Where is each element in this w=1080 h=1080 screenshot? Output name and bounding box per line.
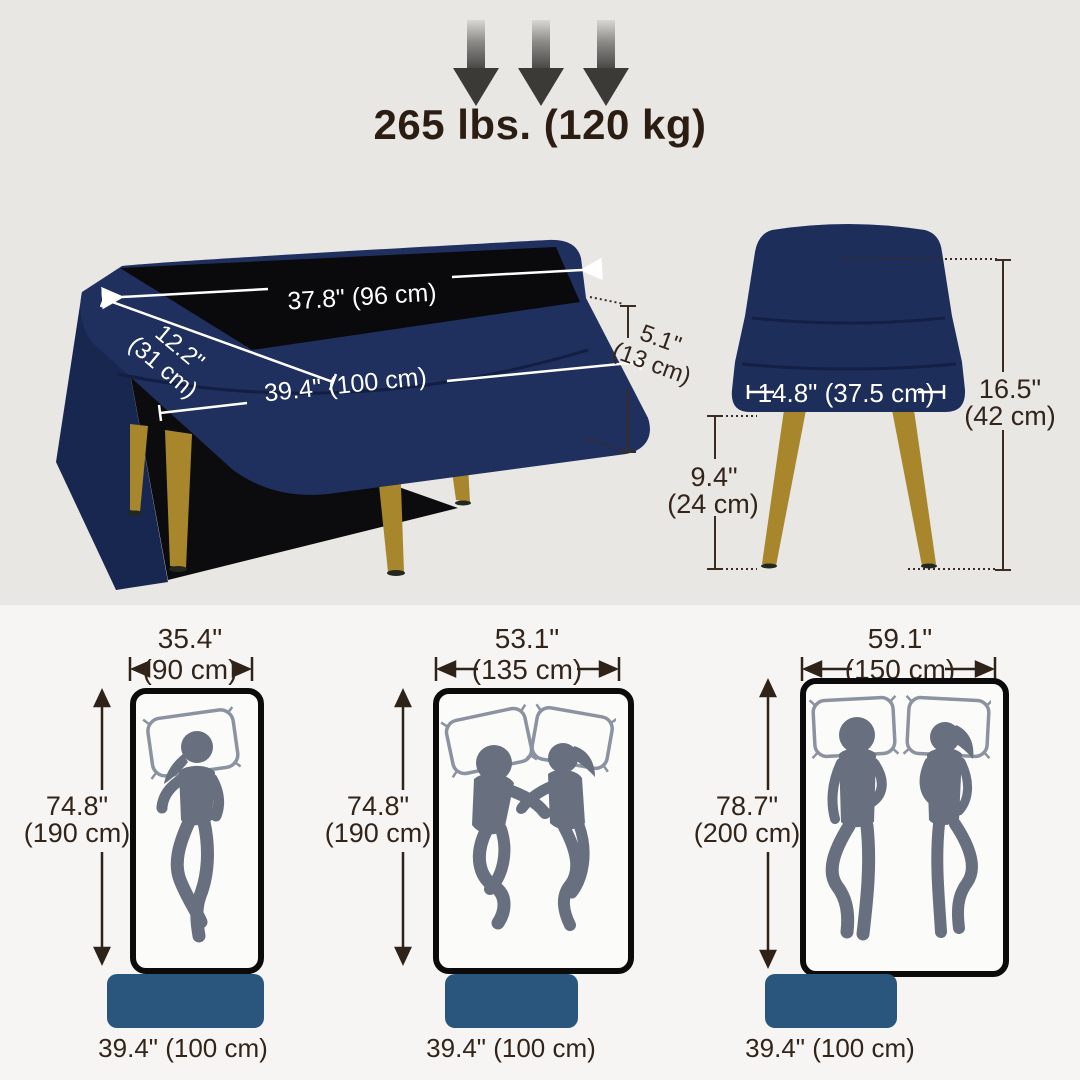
mattress-outline-single xyxy=(130,688,264,974)
measure-lines-top xyxy=(0,0,1080,605)
product-dimension-diagram: 265 lbs. (120 kg) xyxy=(0,0,1080,1080)
sleeper-silhouette xyxy=(832,717,882,934)
dim-leg-height-in: 9.4" xyxy=(664,463,764,492)
mattress1-width-cm: (90 cm) xyxy=(90,655,290,685)
dim-overall-height-cm: (42 cm) xyxy=(955,402,1065,431)
dim-leg-height-cm: (24 cm) xyxy=(658,490,768,519)
mattress3-length-cm: (200 cm) xyxy=(691,819,803,848)
sleeper-silhouette xyxy=(924,722,973,932)
mattress2-length-cm: (190 cm) xyxy=(322,819,434,848)
bench-footprint xyxy=(765,974,897,1028)
sleeper-figures-couple xyxy=(439,694,616,956)
sleeper-figures-couple xyxy=(806,684,991,959)
mattress1-bench-length: 39.4" (100 cm) xyxy=(83,1034,283,1062)
mattress1-width-in: 35.4" xyxy=(90,624,290,654)
sleeper-figures-single xyxy=(136,694,246,956)
mattress1-length-cm: (190 cm) xyxy=(21,819,133,848)
mattress2-width-in: 53.1" xyxy=(427,624,627,654)
bench-footprint xyxy=(107,974,264,1028)
sleeper-silhouette xyxy=(516,743,595,925)
dim-seat-width: 14.8" (37.5 cm) xyxy=(746,379,946,407)
mattress3-length-in: 78.7" xyxy=(697,792,797,821)
mattress2-length-in: 74.8" xyxy=(328,792,428,821)
dim-overall-height-in: 16.5" xyxy=(960,375,1060,404)
sleeper-silhouette xyxy=(472,745,551,923)
mattress2-bench-length: 39.4" (100 cm) xyxy=(411,1034,611,1062)
mattress1-length-in: 74.8" xyxy=(27,792,127,821)
sleeper-silhouette xyxy=(157,731,219,936)
mattress2-width-cm: (135 cm) xyxy=(427,655,627,685)
mattress3-width-in: 59.1" xyxy=(800,624,1000,654)
bench-footprint xyxy=(445,974,578,1028)
bench-dimensions-section: 265 lbs. (120 kg) xyxy=(0,0,1080,605)
mattress-outline-queen xyxy=(800,678,1009,977)
mattress-outline-double xyxy=(433,688,634,974)
mattress3-bench-length: 39.4" (100 cm) xyxy=(730,1034,930,1062)
